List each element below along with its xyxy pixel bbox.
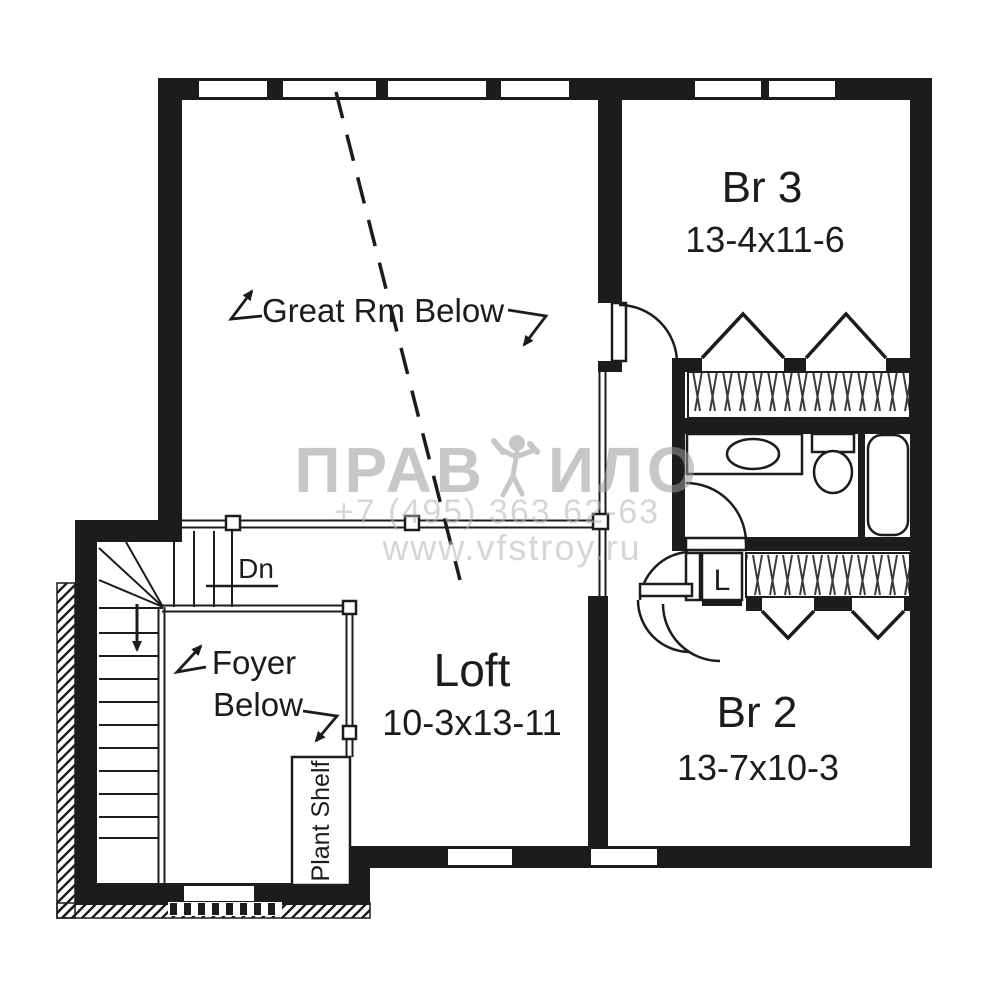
- wall-br2-closet-a: [746, 597, 762, 611]
- window-greatrm-2: [282, 80, 377, 98]
- br2-closet-bifold-door-2: [852, 611, 904, 638]
- plant-shelf-label: Plant Shelf: [307, 760, 335, 881]
- toilet-tank: [812, 434, 854, 452]
- wall-br3-closet-b: [784, 358, 806, 372]
- foyer-label-line2: Below: [213, 686, 303, 723]
- window-br3-2: [768, 80, 836, 98]
- foyer-window-sill: [168, 902, 282, 916]
- window-greatrm-1: [198, 80, 268, 98]
- loft-door-leaf: [640, 584, 692, 596]
- wall-right: [910, 78, 932, 868]
- br3-dims: 13-4x11-6: [685, 219, 844, 260]
- br3-closet-bifold-door-1: [702, 314, 784, 358]
- watermark-website: www.vfstroy.ru: [381, 527, 641, 568]
- floor-plan-drawing: Br 3 13-4x11-6 Great Rm Below Loft 10-3x…: [0, 0, 1000, 1000]
- br3-label: Br 3: [722, 163, 803, 212]
- stair-treads-lower: [99, 633, 158, 838]
- br3-door-arc: [619, 305, 677, 363]
- bathtub: [868, 435, 908, 535]
- railing-post: [343, 726, 356, 739]
- window-foyer: [183, 885, 255, 902]
- stair-treads-upper: [174, 531, 232, 607]
- wall-foyer-left: [75, 520, 97, 905]
- wall-tub-divider: [858, 432, 865, 537]
- wall-loft-br2-divider: [588, 596, 608, 846]
- watermark-phone: +7 (495) 363 62-63: [334, 493, 660, 531]
- stair-winders: [99, 542, 163, 608]
- br2-label: Br 2: [717, 688, 798, 737]
- wall-br2-closet-b: [814, 597, 852, 611]
- greatrm-arrow-left: [231, 291, 262, 319]
- br2-door-arc: [663, 604, 720, 661]
- loft-dims: 10-3x13-11: [382, 702, 561, 743]
- window-greatrm-4: [500, 80, 570, 98]
- br2-closet-bifold-door-1: [762, 611, 814, 638]
- greatrm-label: Great Rm Below: [262, 292, 504, 329]
- wall-bath-sw-stub: [672, 537, 686, 551]
- foyer-label-line1: Foyer: [212, 644, 296, 681]
- br3-closet-bifold-door-2: [806, 314, 886, 358]
- window-greatrm-3: [387, 80, 487, 98]
- bathroom-door-leaf: [686, 538, 746, 550]
- br3-closet-rod: [688, 372, 910, 418]
- wall-greatrm-br3: [598, 78, 622, 303]
- staircase: [99, 531, 232, 883]
- wall-br3-closet-c: [886, 358, 910, 372]
- window-br2: [590, 848, 658, 866]
- window-loft: [447, 848, 513, 866]
- railing-post: [343, 601, 356, 614]
- foyer-arrow-right: [303, 711, 337, 741]
- br3-door-leaf: [612, 303, 626, 361]
- loft-label: Loft: [434, 644, 511, 696]
- wall-foyer-connector: [348, 846, 370, 905]
- br2-dims: 13-7x10-3: [677, 747, 839, 788]
- wall-br3-door-jamb: [598, 361, 622, 372]
- bathroom-fixtures: [687, 434, 908, 535]
- window-br3-1: [694, 80, 762, 98]
- wall-left-upper: [158, 78, 182, 540]
- linen-closet-label: L: [714, 564, 731, 597]
- stairs-dn-label: Dn: [238, 553, 274, 584]
- sink-basin: [727, 439, 779, 469]
- wall-closet-bath-divider: [685, 418, 910, 434]
- foyer-arrow-left: [177, 646, 206, 672]
- stairwell-edge: [159, 607, 165, 883]
- wall-br2-closet-c: [904, 597, 910, 611]
- toilet-bowl: [814, 451, 852, 493]
- greatrm-arrow-right: [508, 310, 546, 345]
- wall-bath-bottom: [746, 537, 910, 551]
- railing-foyer-top: [162, 606, 352, 612]
- railing-post: [226, 516, 240, 530]
- watermark: ПРАВ ИЛО +7 (495) 363 62-63 www.vfstroy.…: [295, 434, 701, 568]
- floor-plan-page: Br 3 13-4x11-6 Great Rm Below Loft 10-3x…: [0, 0, 1000, 1000]
- plumber-mascot-icon: [494, 435, 537, 495]
- br2-closet-rod: [746, 553, 910, 597]
